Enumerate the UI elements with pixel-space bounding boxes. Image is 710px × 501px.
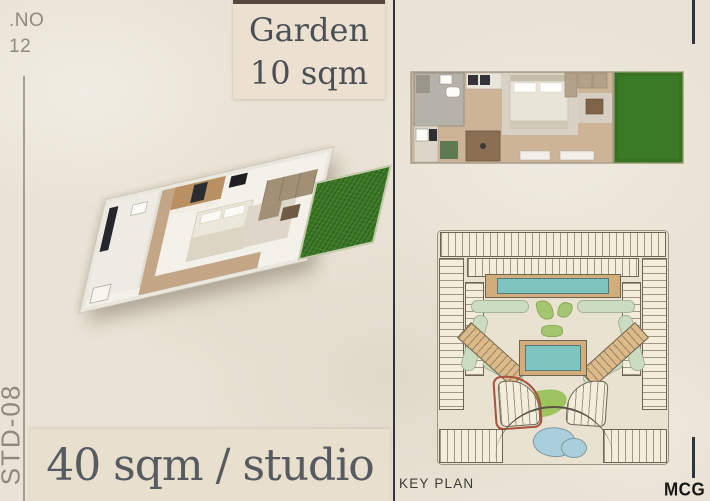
key-plan-path [577, 300, 635, 313]
iso-blanket [187, 225, 247, 260]
unit-area-label: 40 sqm / studio [46, 440, 374, 491]
isometric-unit-render [68, 145, 368, 327]
garden-area: 10 sqm [250, 52, 368, 95]
iso-tv-panel [229, 173, 248, 188]
key-plan-label: KEY PLAN [399, 476, 474, 491]
garden-title-box: Garden 10 sqm [233, 0, 385, 99]
isometric-floor-slab [80, 148, 333, 313]
unit-area-box: 40 sqm / studio [30, 429, 390, 501]
brand-logo: MCG [664, 479, 705, 501]
unit-floor-plan-drawing [410, 71, 684, 164]
key-plan-map [437, 230, 669, 465]
unit-type-code: STD-08 [0, 368, 27, 501]
slide-canvas: .NO 12 STD-08 Garden 10 sqm [0, 0, 710, 501]
unit-number-block: .NO 12 [9, 8, 44, 60]
key-plan-path [471, 300, 529, 313]
key-plan-units-bottom-left [439, 429, 503, 463]
unit-number-label: .NO [9, 8, 44, 34]
unit-floor-plan [410, 71, 684, 164]
vertical-divider [393, 0, 395, 501]
iso-pillow [222, 204, 246, 219]
garden-label: Garden [249, 9, 369, 52]
top-right-tick-line [692, 0, 695, 44]
key-plan-pool-top [497, 278, 609, 294]
bottom-right-tick-line [692, 437, 695, 478]
key-plan-pond [561, 438, 587, 458]
unit-number-value: 12 [9, 34, 44, 60]
key-plan-pool-center [525, 345, 581, 371]
key-plan-units-top [440, 232, 666, 257]
key-plan-lawn [541, 325, 563, 337]
iso-pillow [199, 209, 223, 224]
